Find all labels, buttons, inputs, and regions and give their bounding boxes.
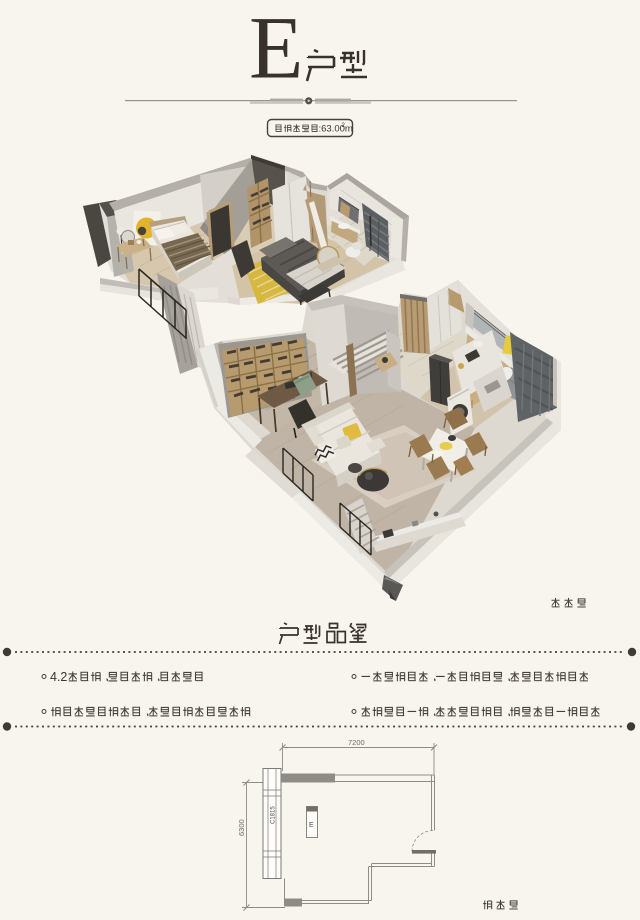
svg-text:C1815: C1815	[271, 806, 277, 824]
svg-text:4.2: 4.2	[50, 670, 67, 684]
svg-text:E: E	[309, 822, 314, 829]
svg-text:6300: 6300	[237, 819, 246, 836]
svg-text:7200: 7200	[348, 738, 365, 747]
svg-text:E: E	[249, 0, 303, 98]
svg-text::63.00m: :63.00m	[319, 124, 353, 135]
